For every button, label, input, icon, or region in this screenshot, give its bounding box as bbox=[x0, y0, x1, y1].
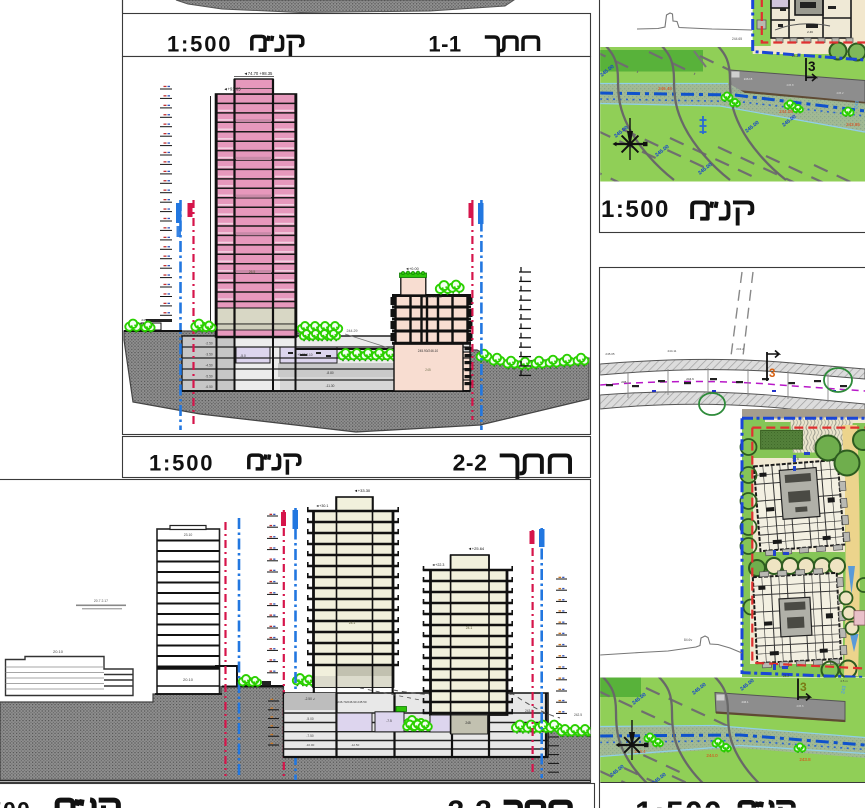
svg-text:1:500: 1:500 bbox=[601, 196, 670, 223]
svg-text:-4.50: -4.50 bbox=[205, 364, 212, 368]
svg-text:4.5 m: 4.5 m bbox=[840, 679, 848, 683]
svg-text:244.6: 244.6 bbox=[686, 377, 694, 381]
svg-text:245: 245 bbox=[425, 368, 431, 372]
svg-text:20.7 2.17: 20.7 2.17 bbox=[94, 599, 108, 603]
svg-text:1:500: 1:500 bbox=[149, 450, 214, 475]
svg-text:-10.00: -10.00 bbox=[306, 743, 315, 747]
svg-text:23.10: 23.10 bbox=[184, 533, 193, 537]
svg-text:26.5: 26.5 bbox=[249, 270, 256, 274]
svg-text:245.2: 245.2 bbox=[837, 91, 844, 95]
svg-text:245: 245 bbox=[465, 721, 471, 725]
svg-text:-6.50: -6.50 bbox=[205, 385, 212, 389]
svg-text:◄+33.30: ◄+33.30 bbox=[354, 488, 371, 493]
svg-text:-5.0: -5.0 bbox=[240, 354, 246, 358]
svg-text:+5.80/4.10: +5.80/4.10 bbox=[297, 353, 312, 357]
svg-text:24.1: 24.1 bbox=[349, 621, 356, 625]
svg-text:242.5: 242.5 bbox=[574, 713, 582, 717]
svg-text:-2.50: -2.50 bbox=[205, 342, 212, 346]
svg-text:245.6: 245.6 bbox=[797, 704, 804, 708]
svg-text:2-2: 2-2 bbox=[453, 449, 488, 475]
svg-text:-2.50 ↲: -2.50 ↲ bbox=[305, 697, 316, 701]
svg-text:20.10: 20.10 bbox=[53, 649, 64, 654]
svg-text:-7.5: -7.5 bbox=[386, 719, 392, 723]
svg-text:24.1: 24.1 bbox=[466, 626, 473, 630]
svg-text:3: 3 bbox=[769, 368, 775, 380]
svg-text:244.65: 244.65 bbox=[732, 37, 742, 41]
svg-text:244.11: 244.11 bbox=[668, 349, 677, 353]
svg-text:246.70/246.90 245.50: 246.70/246.90 245.50 bbox=[337, 700, 367, 704]
svg-text:-7.50: -7.50 bbox=[306, 734, 313, 738]
svg-text:243.85: 243.85 bbox=[846, 122, 860, 127]
svg-text:246.48: 246.48 bbox=[658, 86, 672, 91]
svg-text:84.6v: 84.6v bbox=[684, 638, 693, 642]
svg-text:-12.50: -12.50 bbox=[351, 743, 360, 747]
svg-text:1:500: 1:500 bbox=[635, 795, 723, 808]
svg-text:245.05: 245.05 bbox=[605, 352, 615, 356]
svg-text:1:500: 1:500 bbox=[0, 797, 31, 808]
svg-text:20.10: 20.10 bbox=[183, 677, 194, 682]
svg-text:24.2: 24.2 bbox=[783, 674, 789, 678]
svg-text:-3.50: -3.50 bbox=[205, 353, 212, 357]
svg-text:1-1: 1-1 bbox=[428, 31, 461, 56]
svg-text:1:500: 1:500 bbox=[167, 31, 232, 56]
svg-text:3: 3 bbox=[800, 680, 807, 694]
svg-text:◄74.70 +98.35: ◄74.70 +98.35 bbox=[244, 71, 273, 76]
svg-text:246.15: 246.15 bbox=[744, 77, 753, 81]
svg-text:243.2: 243.2 bbox=[736, 347, 744, 351]
svg-text:-8.80: -8.80 bbox=[326, 371, 333, 375]
svg-text:244.29: 244.29 bbox=[347, 329, 358, 333]
svg-text:244.08: 244.08 bbox=[779, 109, 793, 114]
svg-text:2.46: 2.46 bbox=[807, 30, 813, 34]
svg-text:3-3: 3-3 bbox=[448, 795, 493, 808]
svg-text:24.2: 24.2 bbox=[792, 54, 799, 58]
svg-text:◄+22.3: ◄+22.3 bbox=[432, 563, 445, 567]
svg-text:3: 3 bbox=[808, 59, 816, 74]
svg-text:◄+0.00: ◄+0.00 bbox=[405, 267, 418, 271]
svg-text:◄+91.65: ◄+91.65 bbox=[223, 87, 241, 92]
svg-text:245.60/245.10: 245.60/245.10 bbox=[141, 318, 161, 322]
svg-text:244.0: 244.0 bbox=[706, 753, 718, 758]
svg-text:◄+25.64: ◄+25.64 bbox=[468, 546, 485, 551]
svg-text:245.90/246.10: 245.90/246.10 bbox=[418, 349, 439, 353]
svg-text:246.90 246.60: 246.90 246.60 bbox=[422, 295, 442, 299]
svg-text:-5.00: -5.00 bbox=[306, 717, 313, 721]
svg-text:-5.50: -5.50 bbox=[205, 375, 212, 379]
svg-text:-11.30: -11.30 bbox=[326, 384, 335, 388]
svg-text:243.8: 243.8 bbox=[799, 757, 811, 762]
svg-text:245.8: 245.8 bbox=[787, 83, 794, 87]
svg-text:246.1: 246.1 bbox=[742, 700, 749, 704]
svg-text:◄+30.1: ◄+30.1 bbox=[316, 504, 329, 508]
